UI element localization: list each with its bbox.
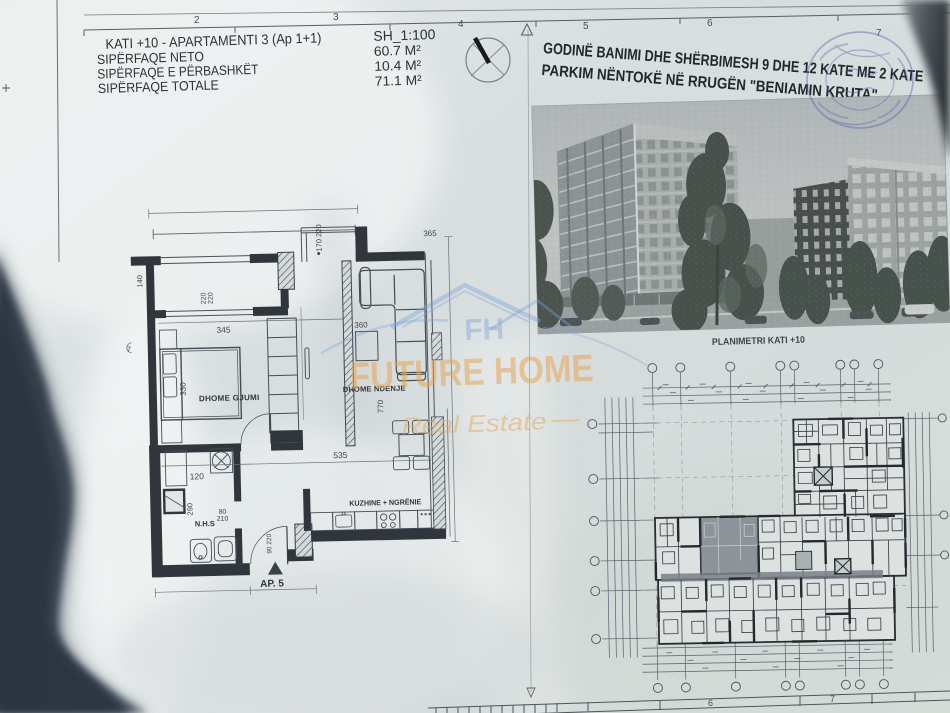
svg-text:KUZHINE + NGRËNIE: KUZHINE + NGRËNIE xyxy=(349,497,421,508)
svg-text:SH_1:100: SH_1:100 xyxy=(373,26,436,44)
svg-text:220: 220 xyxy=(208,292,215,304)
svg-text:6: 6 xyxy=(707,18,713,29)
svg-text:Real Estate: Real Estate xyxy=(401,408,547,440)
svg-text:90 220: 90 220 xyxy=(266,533,273,553)
svg-text:365: 365 xyxy=(423,229,437,238)
svg-text:2: 2 xyxy=(194,15,200,26)
svg-text:345: 345 xyxy=(216,325,231,335)
svg-text:4: 4 xyxy=(458,19,464,30)
svg-text:360: 360 xyxy=(354,320,368,329)
svg-text:DHOME GJUMI: DHOME GJUMI xyxy=(199,393,260,403)
svg-text:3: 3 xyxy=(333,12,339,23)
svg-text:10.4 M²: 10.4 M² xyxy=(374,57,422,73)
svg-text:FH: FH xyxy=(464,313,505,347)
svg-text:140: 140 xyxy=(135,275,144,288)
svg-text:535: 535 xyxy=(333,450,348,460)
svg-text:210: 210 xyxy=(217,516,229,523)
svg-text:N.H.S: N.H.S xyxy=(195,519,215,528)
svg-text:FUTURE HOME: FUTURE HOME xyxy=(349,348,594,398)
svg-text:5: 5 xyxy=(583,21,589,32)
svg-text:71.1 M²: 71.1 M² xyxy=(375,72,423,88)
svg-text:7: 7 xyxy=(830,694,835,704)
svg-text:770: 770 xyxy=(376,399,385,413)
svg-text:120: 120 xyxy=(190,471,205,481)
svg-text:330: 330 xyxy=(179,382,188,396)
svg-text:170 220: 170 220 xyxy=(314,224,324,251)
svg-text:AP. 5: AP. 5 xyxy=(260,578,284,590)
svg-text:6: 6 xyxy=(708,698,713,708)
svg-text:60.7 M²: 60.7 M² xyxy=(374,42,422,58)
svg-text:290: 290 xyxy=(185,503,194,516)
